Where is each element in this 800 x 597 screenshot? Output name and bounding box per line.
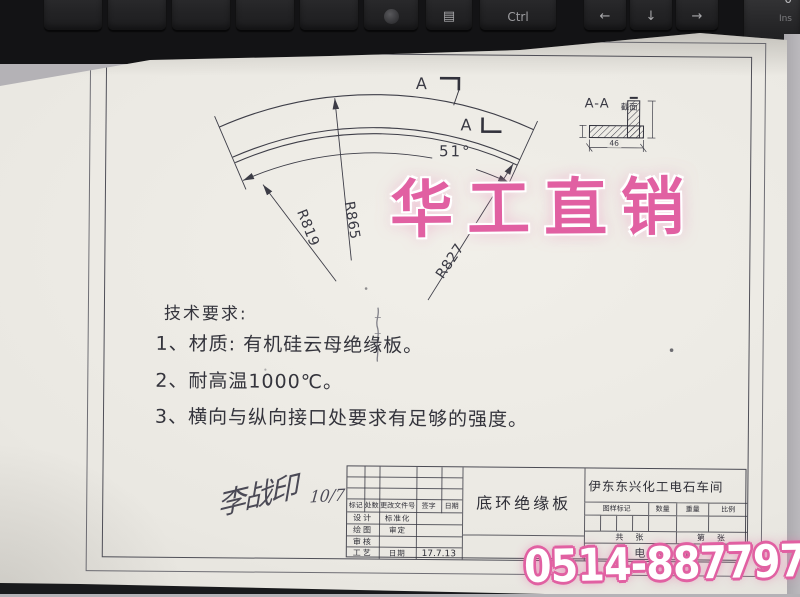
role-draw: 绘图 — [347, 524, 379, 536]
keyboard-key-logo — [364, 0, 418, 30]
section-width-dimension: 46 — [607, 139, 621, 148]
drawing-sheet: A A 51° R819 R865 R827 A-A 截面 46 技术要求: 1… — [0, 0, 800, 597]
keyboard-key — [44, 0, 102, 30]
role-approve: 审定 — [379, 525, 416, 537]
keyboard-key-arrow-down: ↓ — [630, 0, 672, 30]
keyboard-key-menu: ▤ — [426, 0, 472, 30]
keyboard-key-ctrl: Ctrl — [480, 0, 556, 30]
watermark-phone-number: 0514-88779789 — [523, 533, 800, 593]
keyboard-key-arrow-right: → — [676, 0, 718, 30]
angle-dimension-label: 51° — [433, 142, 477, 160]
role-standardization: 标准化 — [379, 513, 416, 525]
role-date-label: 日期 — [379, 548, 416, 559]
spec-subcell — [600, 515, 616, 531]
role-value — [416, 525, 462, 537]
numpad0-label: 0 — [784, 0, 792, 6]
keyboard-key-arrow-left: ← — [584, 0, 626, 30]
spec-header-weight: 重量 — [676, 502, 708, 515]
role-mid-empty — [379, 537, 416, 548]
role-check: 审核 — [347, 536, 379, 547]
section-view-title: A-A — [585, 96, 610, 111]
spec-subcell — [708, 516, 747, 532]
arrow-left-icon: ← — [600, 9, 611, 24]
date-value: 17.7.13 — [416, 548, 462, 559]
rev-header-count: 处数 — [364, 500, 379, 513]
spec-header-qty: 数量 — [648, 502, 676, 515]
role-value — [416, 513, 462, 525]
spec-subcell — [616, 515, 632, 531]
spec-header-scale: 比例 — [708, 503, 747, 516]
photo-of-technical-drawing: { "keyboard": { "ctrl_label": "Ctrl", "a… — [0, 0, 800, 594]
tech-requirements-heading: 技术要求: — [164, 299, 248, 325]
rev-header-docno: 更改文件号 — [379, 500, 416, 513]
keyboard-key — [172, 0, 230, 30]
ins-label: Ins — [779, 14, 792, 24]
part-name: 底环绝缘板 — [462, 467, 585, 535]
spec-subcell — [648, 515, 676, 531]
logo-key-icon — [384, 9, 399, 24]
keyboard-key — [236, 0, 294, 30]
tech-requirement-2: 2、耐高温1000℃。 — [155, 366, 343, 395]
spec-subcell — [584, 514, 600, 530]
role-value — [416, 537, 462, 548]
rev-header-sign: 签字 — [416, 500, 441, 513]
role-process: 工艺 — [347, 547, 379, 558]
spec-subcell — [632, 515, 648, 531]
spec-subcell — [676, 515, 708, 531]
spec-header-mark: 图样标记 — [584, 501, 648, 515]
section-label-top: A — [416, 74, 428, 93]
arrow-right-icon: → — [692, 9, 703, 24]
arrow-down-icon: ↓ — [646, 9, 657, 24]
ctrl-key-label: Ctrl — [507, 10, 528, 24]
rev-header-date: 日期 — [441, 500, 462, 513]
tech-requirement-1: 1、材质: 有机硅云母绝缘板。 — [156, 329, 424, 358]
section-view-subtitle: 截面 — [621, 101, 638, 113]
menu-key-icon: ▤ — [443, 9, 455, 24]
keyboard-key — [108, 0, 166, 30]
tech-requirement-3: 3、横向与纵向接口处要求有足够的强度。 — [155, 402, 528, 432]
keyboard-key — [300, 0, 358, 30]
section-label-bottom: A — [460, 115, 472, 134]
paper-sheet: A A 51° R819 R865 R827 A-A 截面 46 技术要求: 1… — [0, 0, 800, 594]
watermark-brand: 华工直销 — [390, 156, 699, 250]
signature-date: 10/7 — [309, 485, 346, 507]
rev-header-mark: 标记 — [347, 499, 364, 512]
company-name: 伊东东兴化工电石车间 — [584, 468, 747, 502]
role-design: 设计 — [347, 512, 379, 524]
